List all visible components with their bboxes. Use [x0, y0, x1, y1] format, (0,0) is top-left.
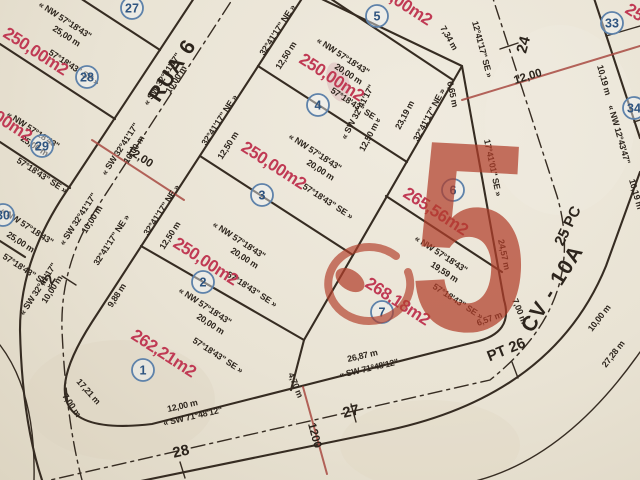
svg-text:28: 28	[80, 71, 94, 85]
svg-text:29: 29	[35, 140, 49, 154]
measure-label: 10,19 m	[627, 178, 640, 211]
svg-text:34: 34	[627, 102, 640, 116]
paper-stain	[340, 400, 520, 480]
svg-text:2: 2	[200, 276, 207, 290]
lot-marker-5: 5	[366, 5, 388, 27]
plat-map-svg: « NW 57°18'43" 20,00 m 57°18'43" SE » « …	[0, 0, 640, 480]
svg-text:5: 5	[374, 10, 381, 24]
street-outer-corner-line	[0, 345, 34, 480]
measure-label: 27,28 m	[600, 338, 627, 369]
plat-map-scan: « NW 57°18'43" 20,00 m 57°18'43" SE » « …	[0, 0, 640, 480]
lot-marker-1: 1	[132, 359, 154, 381]
svg-text:33: 33	[605, 17, 619, 31]
dimension-label: 1200	[305, 422, 323, 450]
measure-label: 23,19 m	[393, 99, 417, 131]
lot-marker-29: 29	[31, 135, 53, 157]
lot-marker-34: 34	[623, 97, 640, 119]
measure-label: 7,34 m	[438, 24, 460, 52]
lot-marker-3: 3	[251, 184, 273, 206]
bearing-label: 57°18'43" SE »	[301, 181, 355, 221]
lot-marker-27: 27	[121, 0, 143, 19]
svg-text:27: 27	[125, 2, 139, 16]
lot-marker-33: 33	[601, 12, 623, 34]
bearing-label: 12°41'17" SE »	[470, 20, 495, 79]
lot-marker-2: 2	[192, 271, 214, 293]
svg-text:1: 1	[140, 364, 147, 378]
svg-text:30: 30	[0, 209, 10, 223]
area-label-lot29: 250,00m2	[0, 89, 36, 145]
measure-label: 12,50 m	[273, 39, 298, 71]
measure-label: 10,00 m	[586, 302, 613, 333]
street-label-28: 28	[171, 441, 191, 461]
station-tick	[62, 276, 76, 285]
lot-marker-30: 30	[0, 204, 14, 226]
red-marker-5: 5	[403, 84, 536, 391]
lot-marker-28: 28	[76, 66, 98, 88]
measure-label: 12,50 m	[215, 129, 240, 161]
bearing-label: 32°41'17" NE »	[91, 212, 131, 267]
lot-marker-4: 4	[307, 94, 329, 116]
measure-label: 12,50 m	[357, 121, 381, 153]
bearing-label: 57°18'43" SE »	[15, 155, 69, 195]
station-tick	[180, 462, 185, 478]
svg-text:4: 4	[315, 99, 322, 113]
svg-text:3: 3	[259, 189, 266, 203]
